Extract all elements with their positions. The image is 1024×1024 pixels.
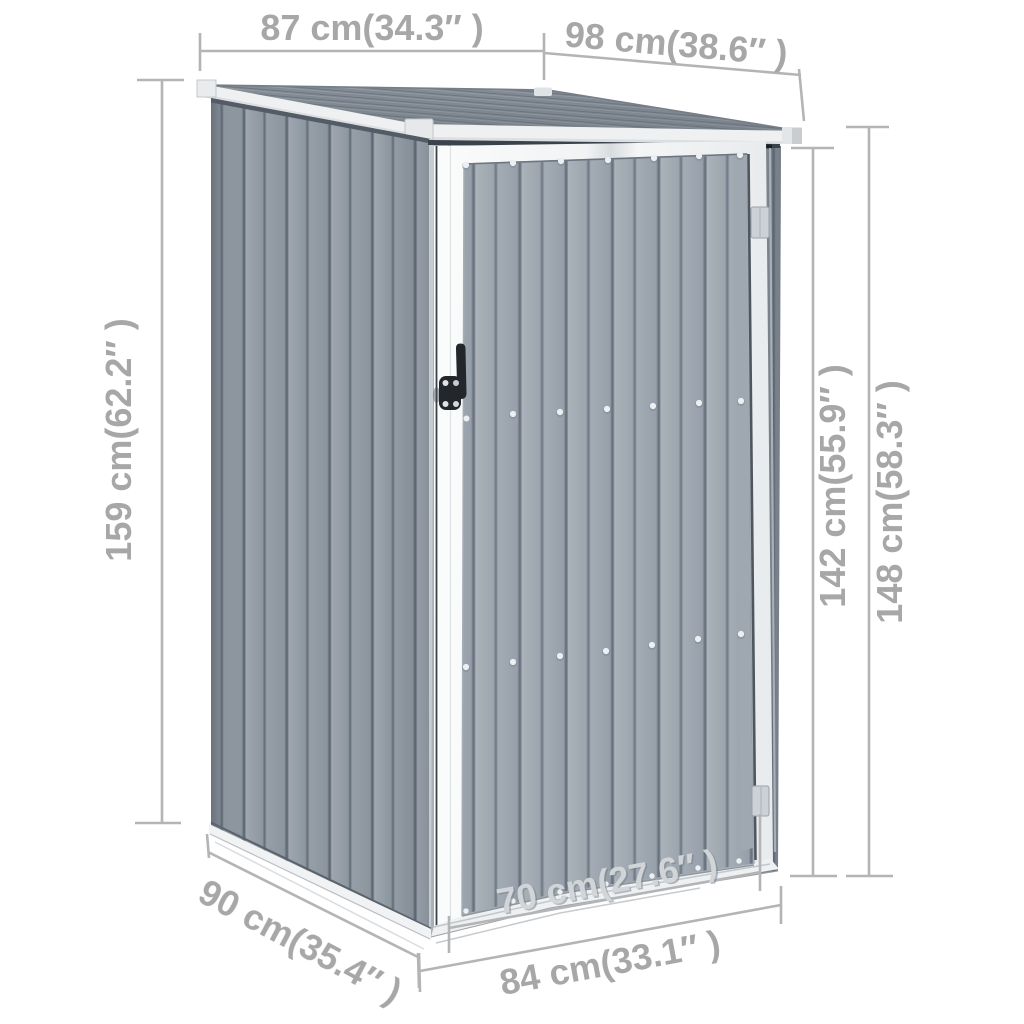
svg-text:159 cm(62.2″ ): 159 cm(62.2″ ) bbox=[98, 318, 139, 561]
svg-text:142 cm(55.9″ ): 142 cm(55.9″ ) bbox=[812, 364, 853, 607]
svg-text:87 cm(34.3″ ): 87 cm(34.3″ ) bbox=[260, 7, 483, 48]
svg-text:84 cm(33.1″ ): 84 cm(33.1″ ) bbox=[496, 922, 723, 1003]
svg-text:148 cm(58.3″ ): 148 cm(58.3″ ) bbox=[869, 380, 910, 623]
